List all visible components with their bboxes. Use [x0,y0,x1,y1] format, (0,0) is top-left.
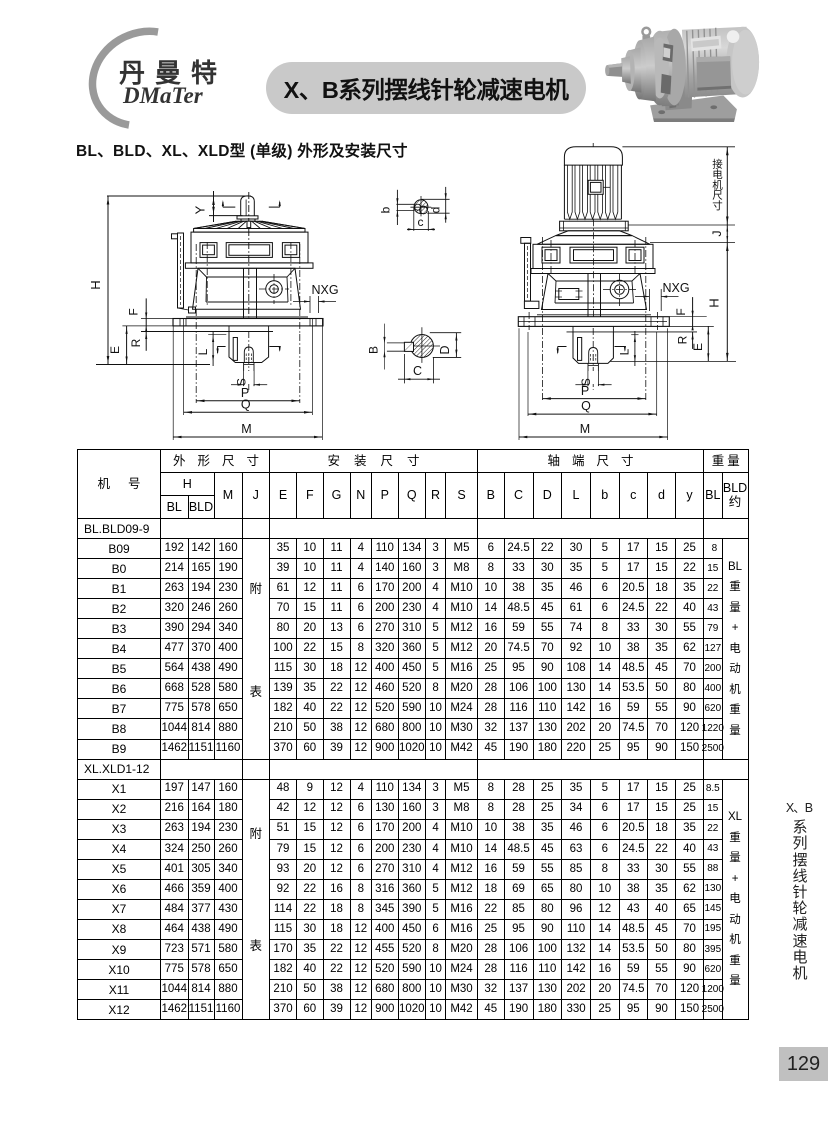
svg-text:E: E [691,343,705,351]
svg-text:NXG: NXG [311,283,338,297]
svg-text:寸: 寸 [712,199,723,212]
svg-text:C: C [413,364,422,378]
svg-text:M: M [241,422,251,436]
svg-text:c: c [418,215,424,229]
svg-text:Q: Q [241,398,251,412]
svg-text:d: d [429,207,443,214]
svg-text:F: F [674,308,688,315]
svg-text:H: H [88,280,103,289]
svg-text:b: b [379,206,393,213]
svg-text:NXG: NXG [662,281,689,295]
svg-text:Q: Q [581,399,591,413]
svg-text:D: D [438,345,452,354]
svg-text:F: F [126,308,140,315]
svg-text:J: J [710,231,724,237]
svg-text:P: P [581,384,589,398]
svg-text:M: M [580,422,590,436]
svg-text:E: E [108,346,122,354]
svg-text:R: R [129,338,143,347]
svg-text:B: B [367,346,381,354]
svg-text:L: L [618,348,632,355]
svg-text:R: R [675,335,689,344]
svg-text:Y: Y [193,205,208,214]
svg-text:H: H [707,298,722,307]
svg-text:L: L [196,348,210,355]
